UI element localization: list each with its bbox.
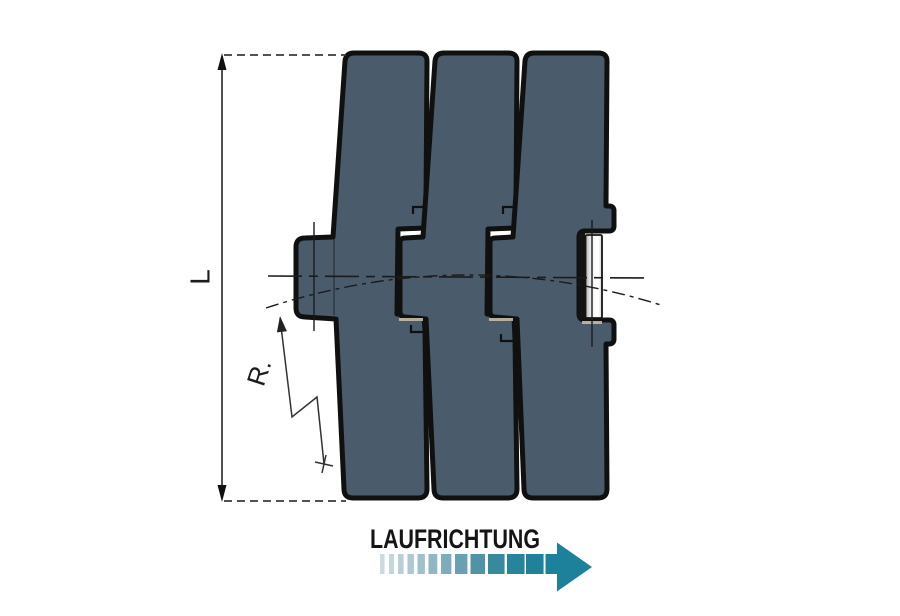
direction-arrow-segment bbox=[380, 554, 385, 574]
direction-arrow-segment bbox=[429, 554, 438, 574]
direction-label: LAUFRICHTUNG bbox=[370, 524, 540, 554]
direction-arrow-segment bbox=[507, 554, 525, 574]
direction-arrow-segment bbox=[398, 554, 404, 574]
direction-arrow-segments bbox=[380, 554, 544, 574]
pin-bar bbox=[586, 235, 603, 318]
technical-drawing: L R. LAUFRICHTUNG bbox=[0, 0, 900, 616]
direction-arrow-segment bbox=[441, 554, 451, 574]
direction-arrow-head bbox=[557, 543, 592, 592]
direction-arrow-shaft bbox=[546, 554, 559, 574]
direction-arrow-segment bbox=[389, 554, 394, 574]
direction-arrow-segment bbox=[488, 554, 505, 574]
dimension-label: L bbox=[184, 269, 215, 285]
dimension-arrow-bottom bbox=[218, 485, 227, 502]
leader-arrowhead bbox=[277, 316, 287, 332]
radius-label: R. bbox=[241, 355, 278, 389]
direction-indicator: LAUFRICHTUNG bbox=[370, 524, 592, 592]
hinge-pin bbox=[578, 233, 602, 319]
direction-arrow-segment bbox=[526, 554, 544, 574]
leader-line bbox=[280, 318, 324, 464]
direction-arrow-segment bbox=[471, 554, 486, 574]
direction-arrow-segment bbox=[408, 554, 414, 574]
drawing-canvas: L R. LAUFRICHTUNG bbox=[0, 0, 900, 616]
radius-leader bbox=[277, 316, 333, 473]
pin-bracket bbox=[578, 233, 585, 319]
direction-arrow-segment bbox=[455, 554, 467, 574]
direction-arrow-segment bbox=[418, 554, 425, 574]
